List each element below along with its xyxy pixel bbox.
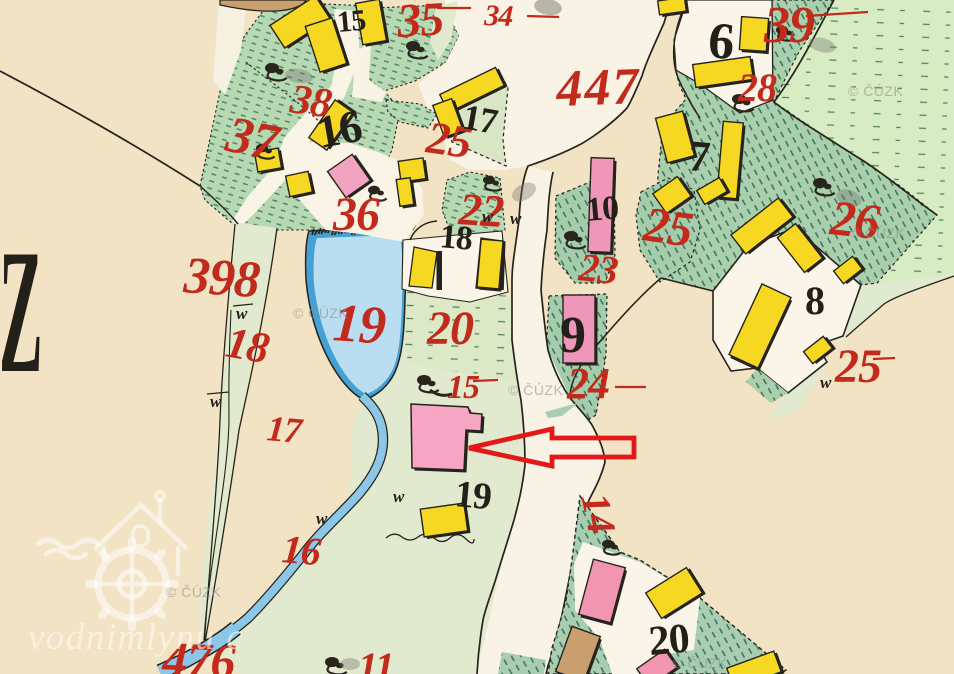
svg-text:w: w [482,207,494,226]
svg-text:16: 16 [313,100,365,158]
svg-text:24: 24 [566,359,609,408]
svg-text:25: 25 [639,195,695,257]
svg-text:28: 28 [737,65,777,110]
svg-text:16: 16 [280,526,323,574]
svg-text:18: 18 [438,218,473,258]
svg-text:15: 15 [336,4,367,39]
svg-text:w: w [316,509,328,528]
svg-text:23: 23 [576,244,619,293]
svg-text:w: w [820,373,832,392]
svg-text:vodnimlynu c: vodnimlynu c [28,617,244,658]
svg-text:20: 20 [426,302,474,355]
svg-text:w: w [210,392,222,411]
svg-text:w: w [236,304,248,323]
svg-text:8: 8 [805,278,824,323]
svg-text:398: 398 [181,247,262,309]
svg-text:15: 15 [447,369,480,406]
svg-text:9: 9 [560,307,585,364]
svg-text:© ČÚZK: © ČÚZK [848,83,903,99]
svg-text:11: 11 [358,644,394,674]
svg-text:10: 10 [584,189,619,229]
svg-text:34: 34 [483,0,514,33]
svg-text:19: 19 [331,292,388,356]
svg-text:7: 7 [686,131,711,182]
svg-text:Z: Z [0,213,43,411]
svg-text:447: 447 [554,58,641,118]
svg-text:© ČÚZK: © ČÚZK [850,225,905,241]
svg-text:© ČÚZK: © ČÚZK [508,382,563,398]
svg-text:17: 17 [265,408,305,451]
svg-text:19: 19 [453,473,493,518]
svg-text:6: 6 [706,12,736,71]
svg-text:39: 39 [763,0,815,54]
svg-text:w: w [393,487,405,506]
svg-text:© ČÚZK: © ČÚZK [166,584,221,600]
svg-text:© ČÚZK: © ČÚZK [672,655,727,671]
svg-text:36: 36 [332,188,380,241]
svg-text:© ČÚZK: © ČÚZK [293,305,348,321]
svg-text:25: 25 [834,340,881,393]
svg-text:w: w [510,209,522,228]
